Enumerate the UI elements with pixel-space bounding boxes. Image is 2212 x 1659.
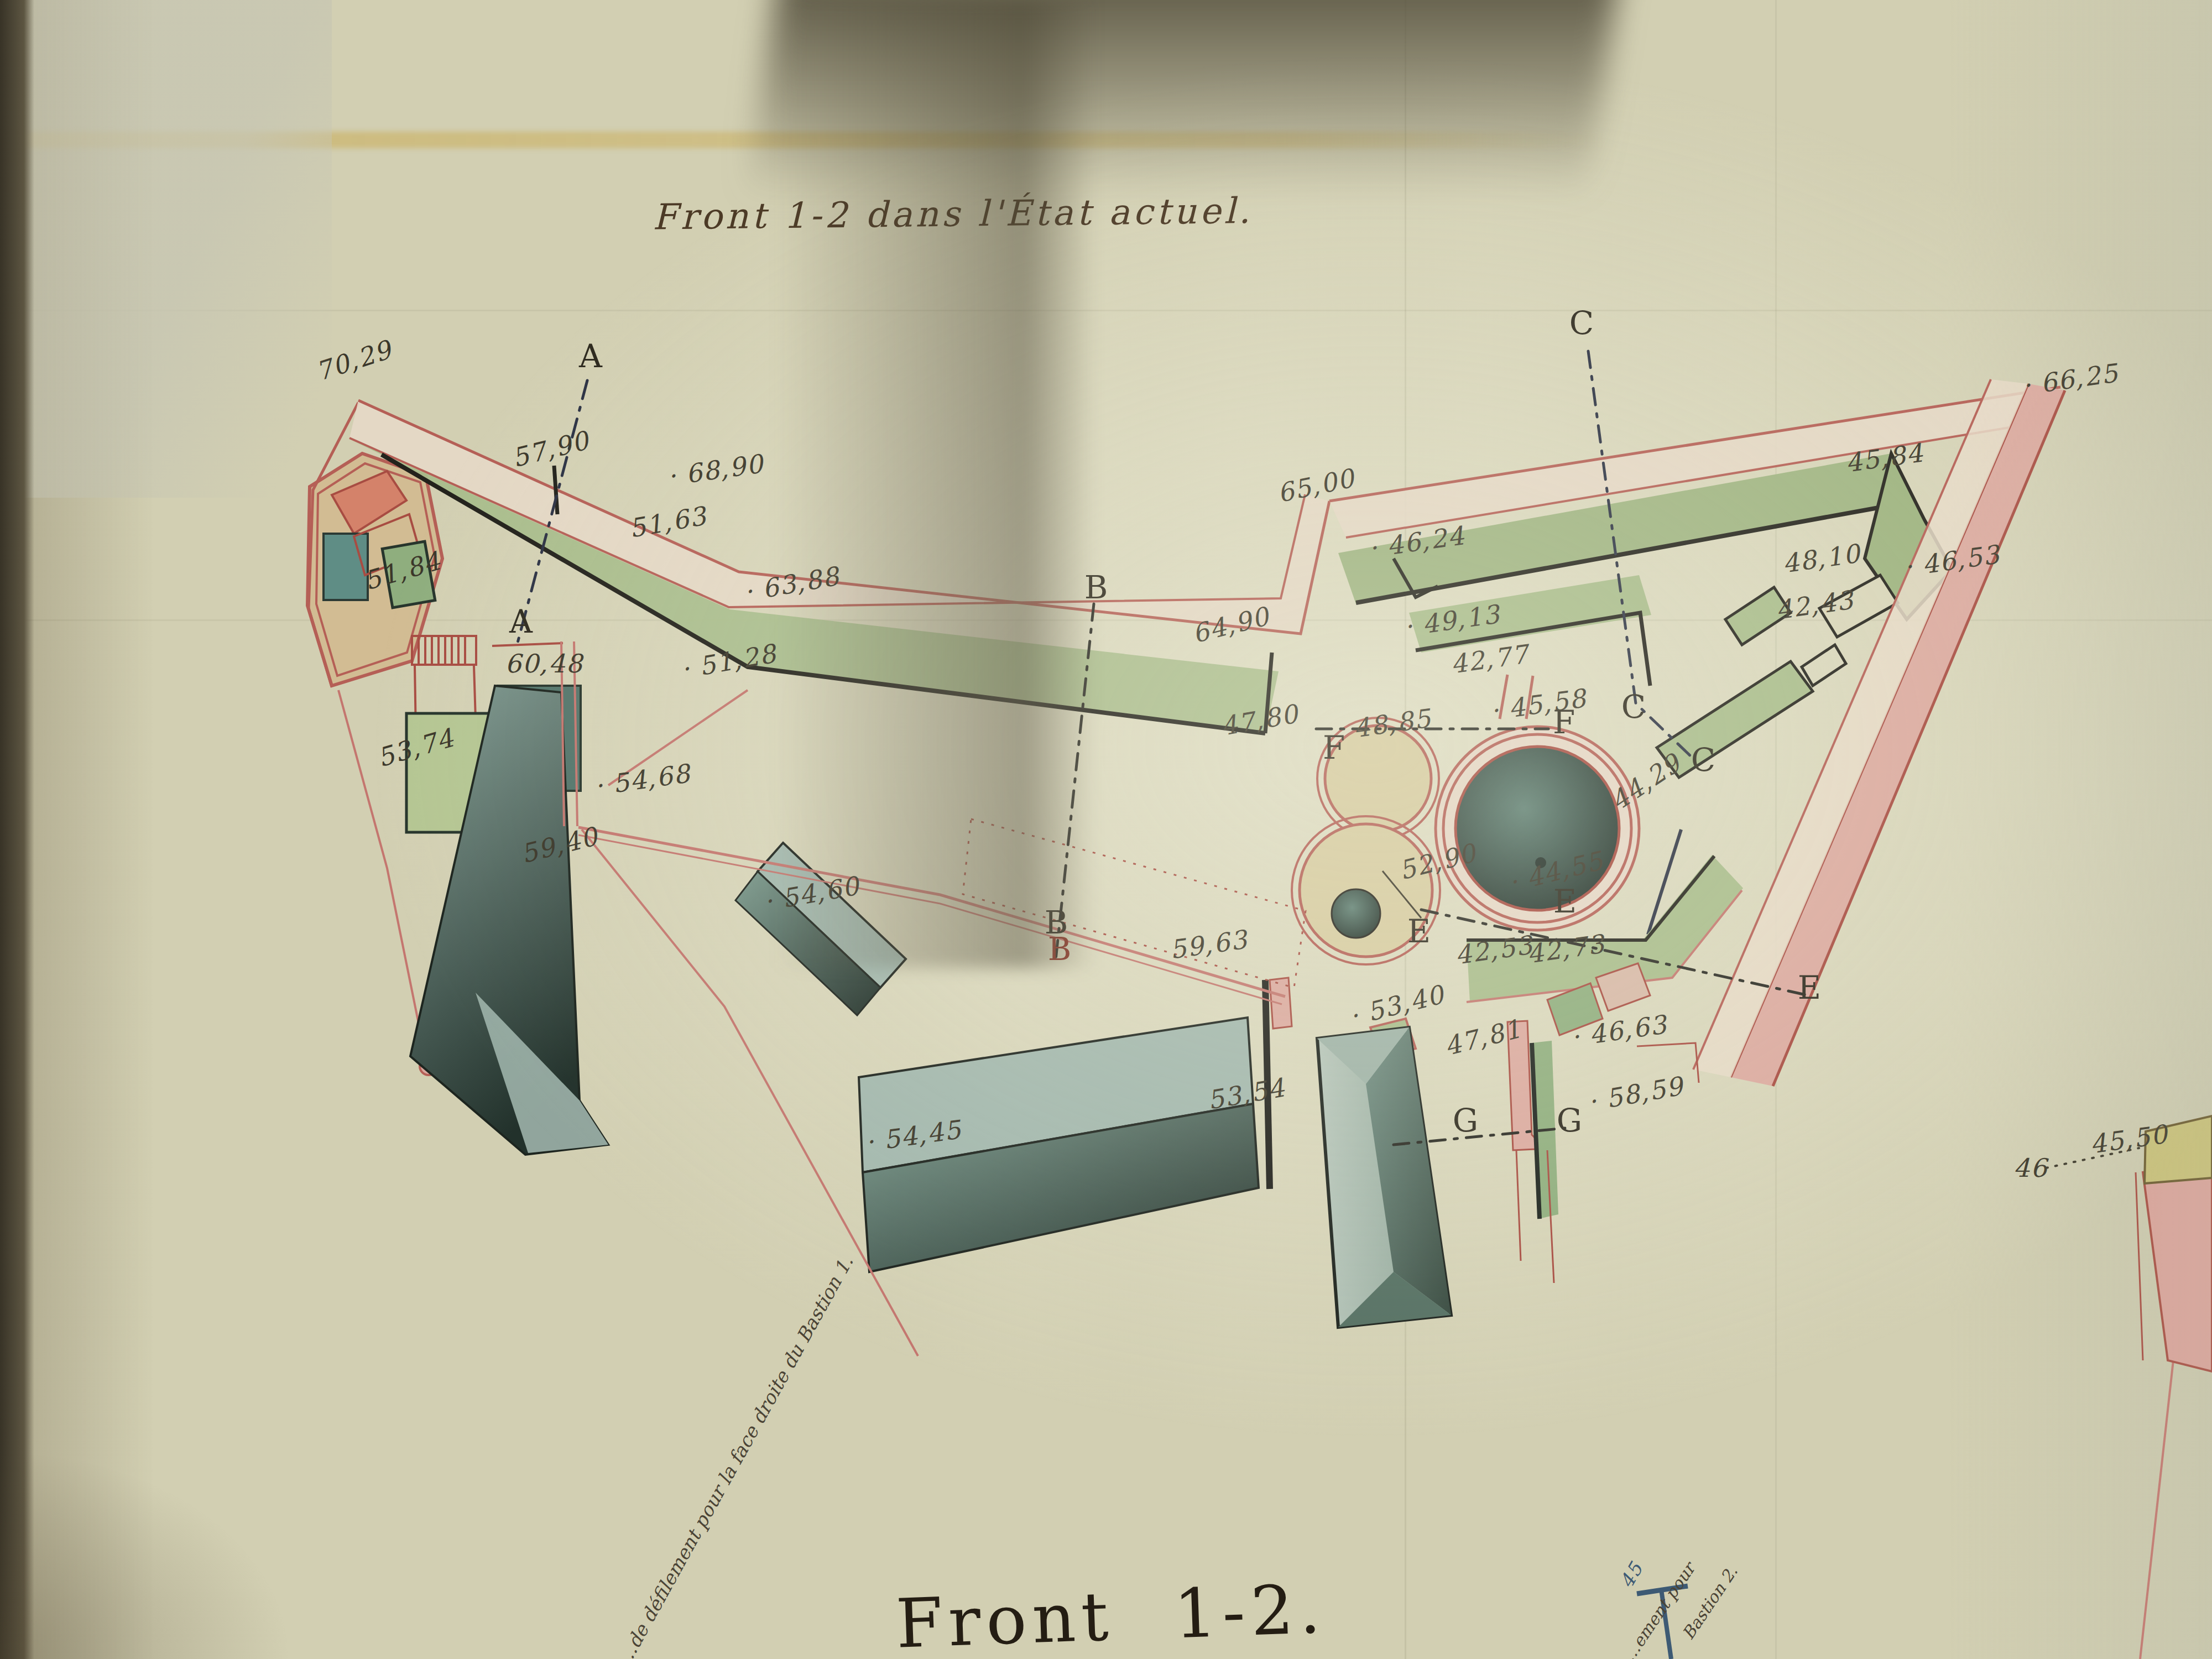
section-letter: E [1798, 969, 1821, 1006]
elevation-label: 53,54 [1206, 1072, 1288, 1115]
elevation-label: 42,77 [1449, 639, 1531, 679]
section-letter: G [1557, 1102, 1582, 1139]
elevation-label: 42,73 [1525, 928, 1607, 969]
section-letter: E [1407, 912, 1431, 950]
section-letter: C [1621, 688, 1646, 726]
elevation-label: 59,63 [1168, 924, 1250, 964]
plan-labels: 70,2957,90· 68,9051,63· 63,8860,4851,845… [0, 0, 2212, 1659]
section-letter: B [1048, 930, 1072, 968]
elevation-label: 59,40 [518, 821, 602, 869]
elevation-label: · 51,28 [679, 638, 779, 685]
elevation-label: 45,84 [1844, 437, 1926, 478]
elevation-label: 45 [1615, 1558, 1647, 1592]
elevation-label: 64,90 [1190, 601, 1273, 649]
scanned-plan-page: 70,2957,90· 68,9051,63· 63,8860,4851,845… [0, 0, 2212, 1659]
elevation-label: 45,50 [2088, 1119, 2170, 1159]
elevation-label: 42,43 [1774, 585, 1856, 625]
elevation-label: 53,74 [374, 723, 457, 773]
elevation-label: · 49,13 [1402, 599, 1503, 642]
elevation-label: 57,90 [509, 425, 593, 473]
elevation-label: · 54,45 [864, 1114, 964, 1157]
section-letter: F [1323, 729, 1345, 766]
elevation-label: · 63,88 [742, 561, 842, 607]
elevation-label: 46 [2013, 1153, 2048, 1183]
elevation-label: · 58,59 [1585, 1071, 1686, 1117]
handwritten-note: …de défilement pour la face droite du Ba… [613, 1252, 857, 1659]
elevation-label: 48,10 [1781, 538, 1863, 578]
section-letter: A [579, 337, 602, 375]
elevation-label: · 68,90 [666, 448, 766, 492]
elevation-label: · 66,25 [2021, 358, 2121, 401]
elevation-label: · 54,68 [593, 758, 693, 801]
elevation-label: 51,63 [627, 500, 709, 544]
elevation-label: 44,29 [1605, 748, 1687, 816]
elevation-label: · 46,63 [1569, 1009, 1670, 1052]
elevation-label: 52,90 [1396, 838, 1480, 886]
elevation-label: 65,00 [1275, 463, 1358, 508]
elevation-label: 70,29 [312, 334, 395, 387]
elevation-label: · 46,53 [1902, 539, 2002, 582]
section-letter: F [1553, 703, 1575, 741]
page-title: Front 1-2 dans l'État actuel. [653, 189, 1438, 238]
section-letter: E [1553, 883, 1577, 920]
elevation-label: 51,84 [361, 546, 444, 596]
elevation-label: 47,81 [1442, 1014, 1525, 1062]
elevation-label: 48,85 [1352, 703, 1433, 743]
elevation-label: 42,53 [1453, 930, 1535, 970]
section-letter: C [1691, 741, 1715, 779]
elevation-label: · 54,60 [761, 870, 862, 917]
elevation-label: 60,48 [505, 649, 583, 679]
elevation-label: · 46,24 [1367, 520, 1467, 564]
section-letter: A [509, 603, 533, 640]
section-letter: B [1084, 568, 1108, 606]
section-letter: C [1569, 304, 1594, 342]
section-letter: G [1453, 1102, 1478, 1139]
elevation-label: 47,80 [1219, 698, 1301, 742]
elevation-label: · 53,40 [1347, 979, 1448, 1032]
